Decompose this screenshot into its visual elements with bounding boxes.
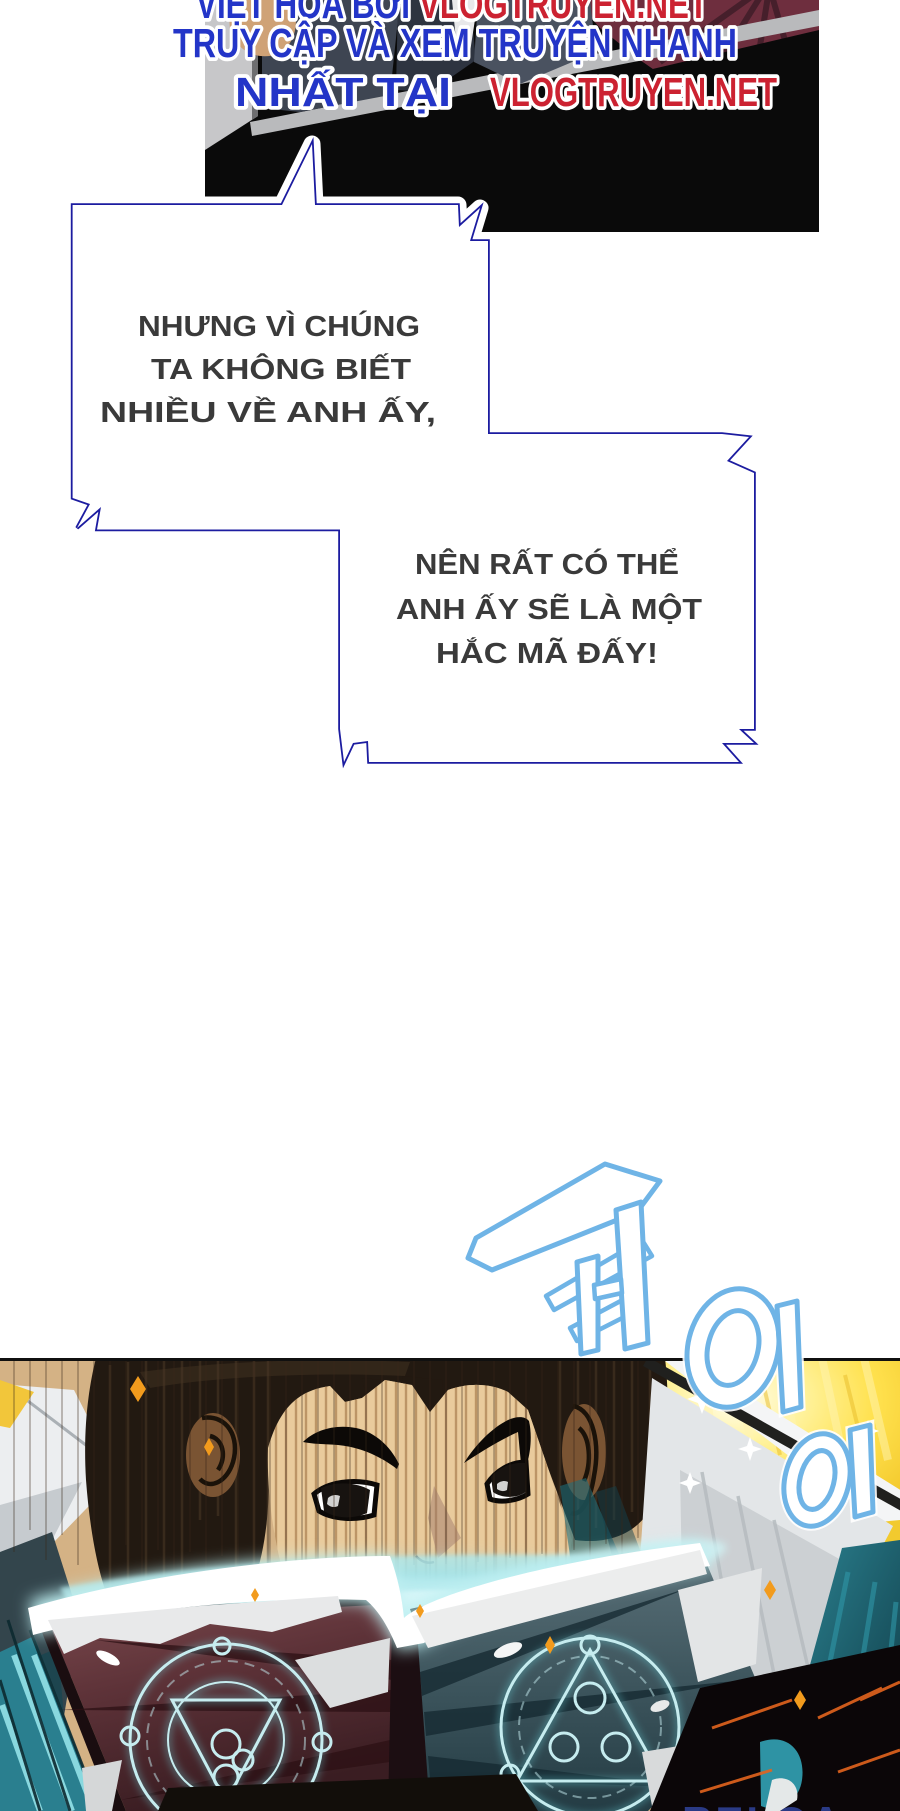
svg-text:RELOA: RELOA — [682, 1798, 844, 1811]
svg-text:ANH ẤY SẼ LÀ MỘT: ANH ẤY SẼ LÀ MỘT — [396, 592, 702, 626]
svg-text:NÊN RẤT CÓ THỂ: NÊN RẤT CÓ THỂ — [415, 547, 679, 581]
svg-text:HẮC MÃ ĐẤY!: HẮC MÃ ĐẤY! — [436, 636, 658, 670]
svg-text:VLOGTRUYEN.NET: VLOGTRUYEN.NET — [490, 69, 777, 115]
svg-text:TRUY CẬP VÀ XEM TRUYỆN NHANH: TRUY CẬP VÀ XEM TRUYỆN NHANH — [173, 20, 737, 66]
svg-text:TA KHÔNG BIẾT: TA KHÔNG BIẾT — [151, 352, 411, 386]
svg-text:NHẤT TẠI: NHẤT TẠI — [235, 69, 451, 115]
svg-text:NHƯNG VÌ CHÚNG: NHƯNG VÌ CHÚNG — [138, 309, 420, 343]
svg-text:NHIỀU VỀ ANH ẤY,: NHIỀU VỀ ANH ẤY, — [100, 395, 436, 429]
